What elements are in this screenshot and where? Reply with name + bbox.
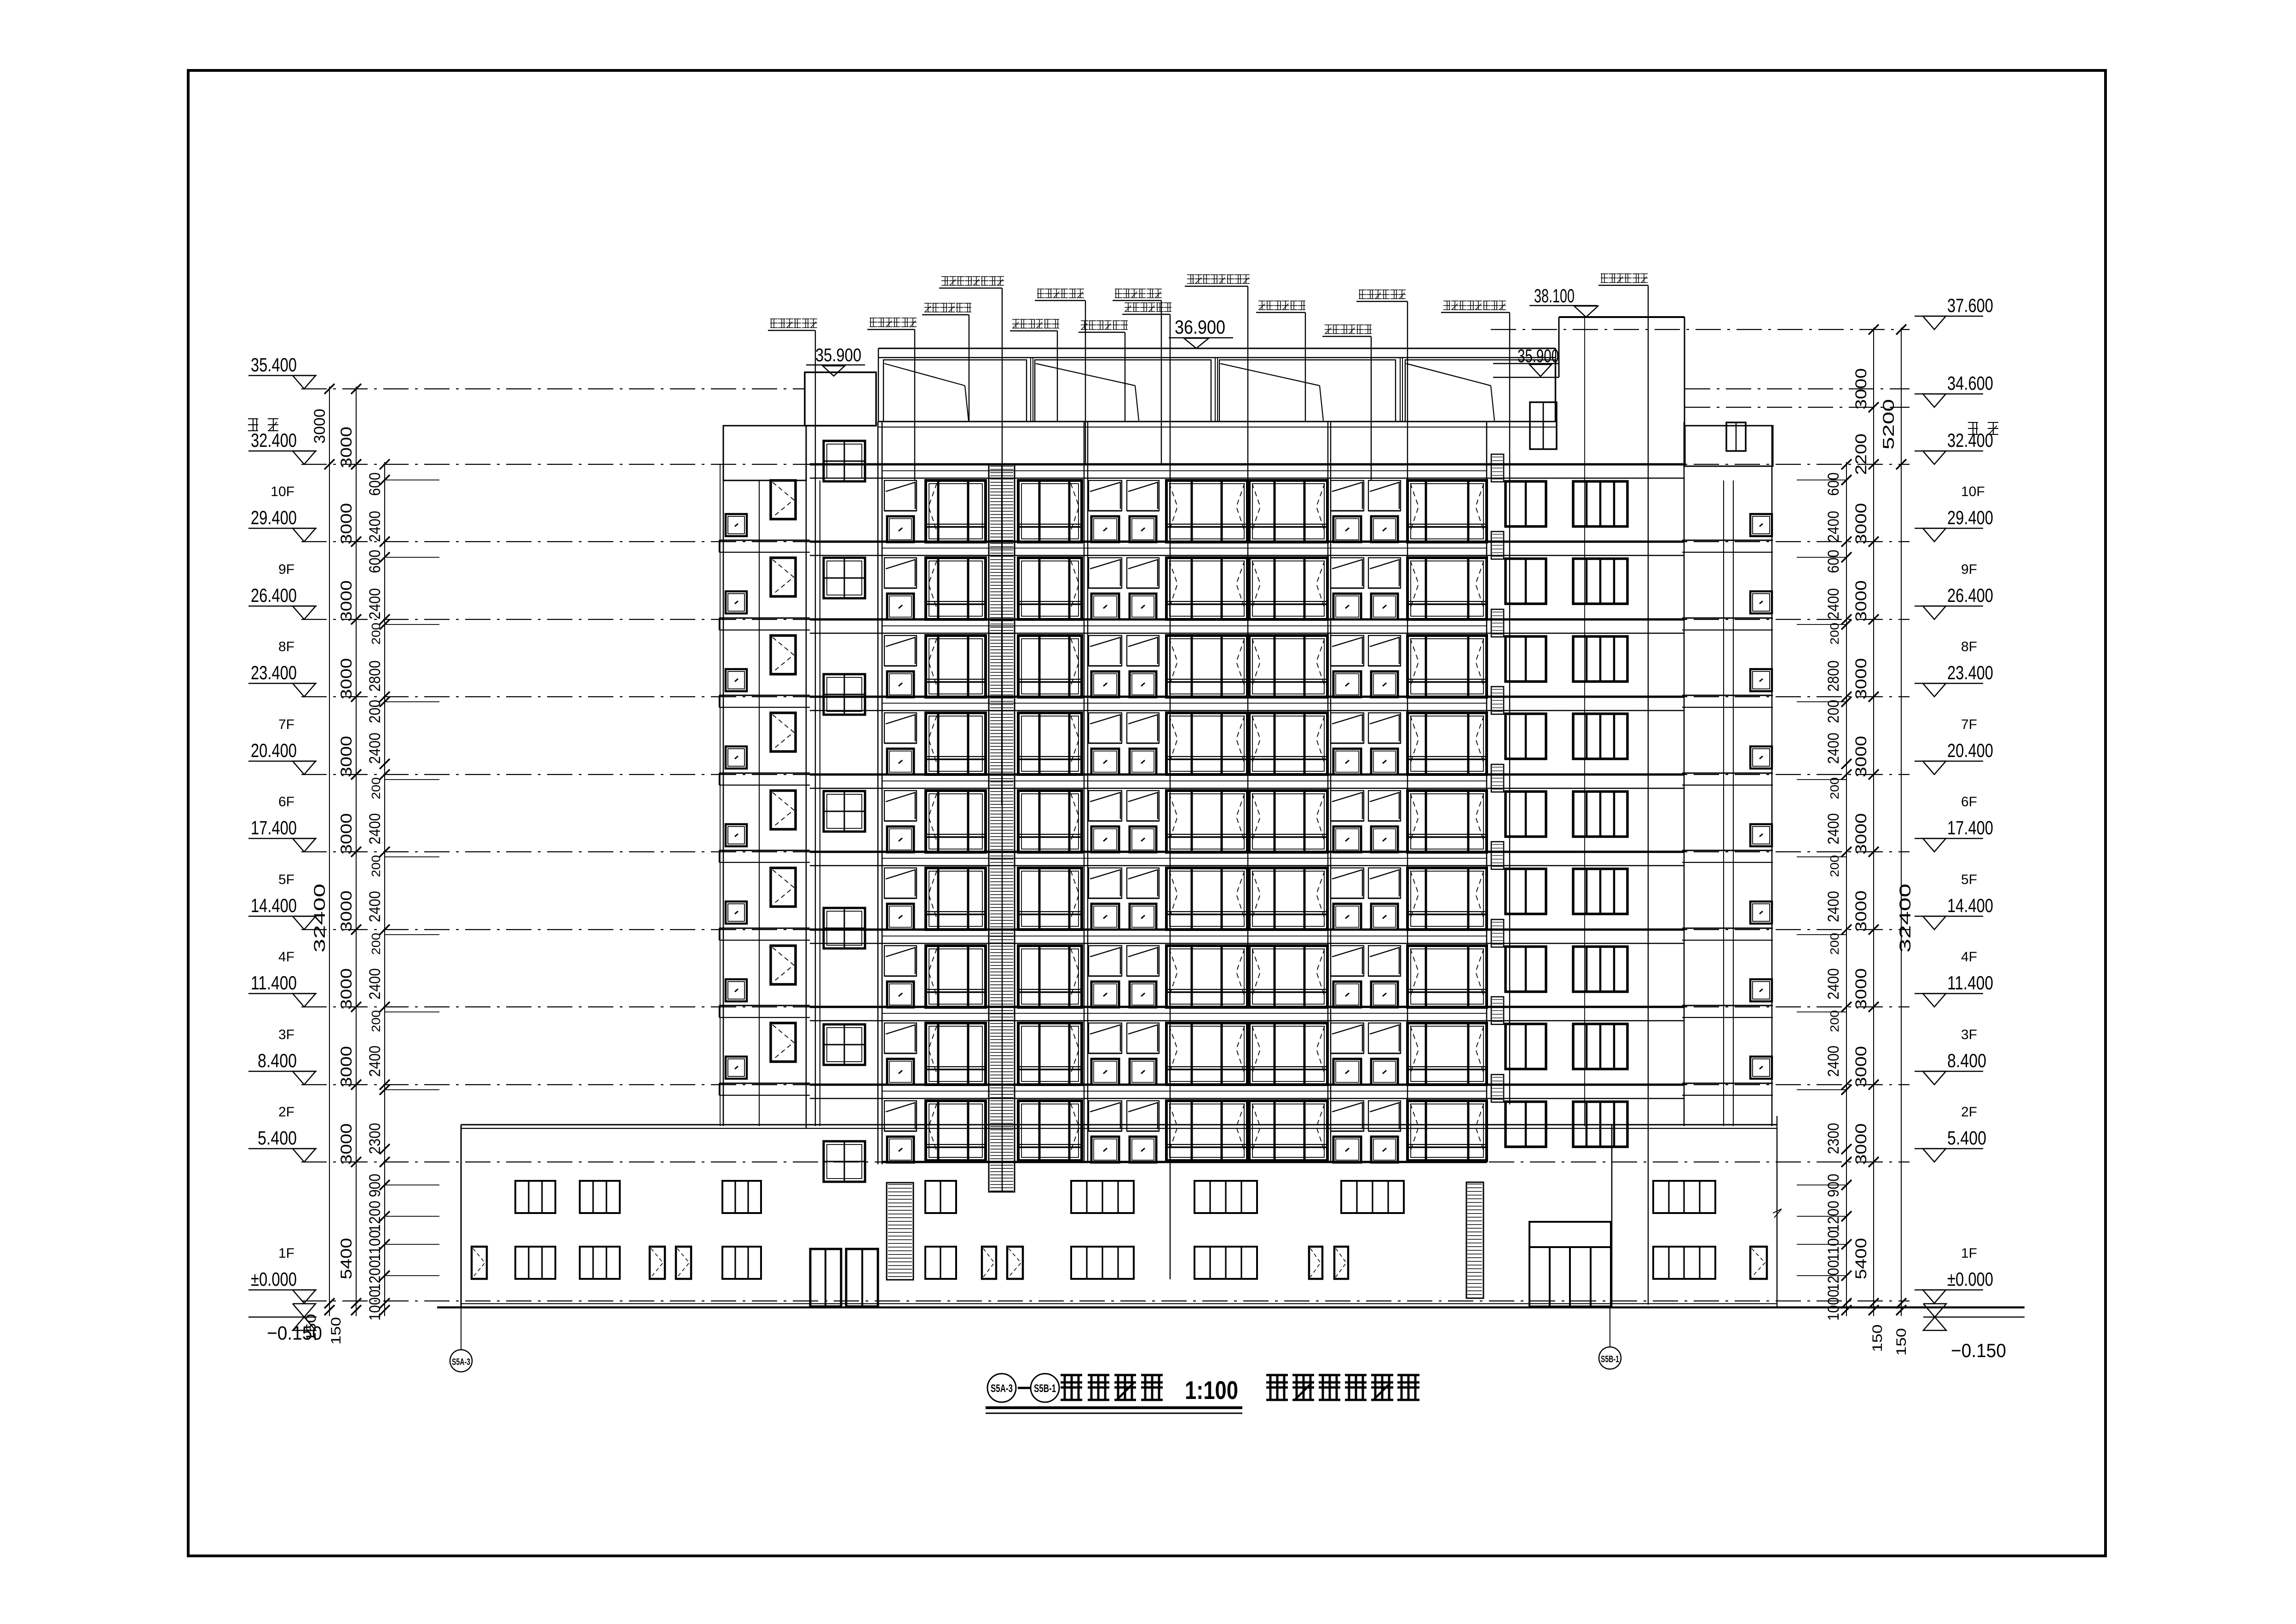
svg-text:23.400: 23.400 [251,662,297,683]
svg-text:S5A-3: S5A-3 [452,1357,470,1367]
svg-text:±0.000: ±0.000 [1947,1268,1993,1290]
svg-text:200: 200 [369,777,383,799]
svg-text:5.400: 5.400 [1947,1127,1986,1149]
svg-text:3000: 3000 [338,580,355,622]
svg-text:900: 900 [1825,1174,1842,1197]
svg-text:5F: 5F [1961,872,1977,887]
svg-text:2800: 2800 [366,660,384,692]
svg-text:3000: 3000 [1852,736,1870,777]
svg-text:20.400: 20.400 [1947,740,1993,761]
svg-text:29.400: 29.400 [251,507,297,528]
svg-text:2400: 2400 [1825,1046,1842,1077]
svg-text:17.400: 17.400 [251,817,297,838]
svg-text:38.100: 38.100 [1534,285,1575,306]
svg-text:26.400: 26.400 [1947,584,1993,606]
svg-text:2200: 2200 [1852,433,1870,475]
svg-text:1200: 1200 [366,1260,384,1291]
svg-text:200: 200 [369,933,383,955]
svg-text:35.400: 35.400 [251,354,297,376]
svg-text:2400: 2400 [1825,813,1842,844]
svg-text:200: 200 [1828,855,1841,877]
svg-text:8.400: 8.400 [258,1050,297,1071]
svg-text:2400: 2400 [366,733,384,764]
svg-text:3000: 3000 [338,1046,355,1087]
svg-text:1200: 1200 [366,1201,384,1232]
svg-text:2400: 2400 [1825,588,1842,619]
svg-text:5.400: 5.400 [258,1127,297,1149]
svg-text:3000: 3000 [338,813,355,855]
svg-text:150: 150 [1894,1328,1909,1356]
svg-text:2400: 2400 [366,511,384,542]
svg-text:600: 600 [1825,550,1842,573]
svg-text:200: 200 [369,623,383,645]
svg-text:3000: 3000 [311,409,329,444]
svg-text:32400: 32400 [1897,884,1914,953]
svg-text:3F: 3F [278,1027,294,1042]
svg-text:29.400: 29.400 [1947,507,1993,528]
svg-text:2400: 2400 [366,588,384,619]
svg-text:2400: 2400 [1825,511,1842,542]
svg-text:3000: 3000 [1852,968,1870,1010]
svg-text:1F: 1F [1961,1246,1977,1261]
svg-text:26.400: 26.400 [251,584,297,606]
svg-text:6F: 6F [278,794,294,809]
svg-text:S5B-1: S5B-1 [1601,1354,1619,1364]
svg-text:35.900: 35.900 [815,345,861,365]
svg-text:1100: 1100 [1825,1230,1842,1261]
svg-text:14.400: 14.400 [251,895,297,916]
svg-text:32400: 32400 [311,884,329,953]
svg-text:3000: 3000 [338,890,355,932]
svg-text:1000: 1000 [1825,1289,1842,1321]
svg-text:3000: 3000 [338,736,355,777]
svg-text:3000: 3000 [1852,580,1870,622]
svg-text:2400: 2400 [1825,733,1842,764]
svg-text:200: 200 [369,1010,383,1032]
svg-text:±0.000: ±0.000 [251,1268,297,1290]
svg-text:2F: 2F [1961,1104,1977,1120]
svg-text:4F: 4F [1961,949,1977,965]
svg-text:5400: 5400 [1852,1238,1870,1279]
svg-text:900: 900 [366,1174,384,1197]
svg-text:20.400: 20.400 [251,740,297,761]
svg-text:600: 600 [1825,473,1842,496]
svg-text:2800: 2800 [1825,660,1842,692]
svg-text:1000: 1000 [366,1289,384,1321]
svg-text:S5A-3: S5A-3 [991,1382,1013,1395]
svg-text:2400: 2400 [1825,891,1842,922]
svg-text:3000: 3000 [338,1123,355,1165]
svg-text:600: 600 [366,550,384,573]
svg-text:2400: 2400 [366,813,384,844]
svg-text:3000: 3000 [1852,1123,1870,1165]
svg-text:36.900: 36.900 [1175,316,1225,338]
svg-text:2400: 2400 [1825,968,1842,1000]
svg-text:8F: 8F [278,639,294,654]
svg-text:1:100: 1:100 [1185,1375,1238,1404]
svg-text:200: 200 [1828,1010,1841,1032]
svg-text:3F: 3F [1961,1027,1977,1042]
svg-text:8.400: 8.400 [1947,1050,1986,1071]
svg-text:200: 200 [369,855,383,877]
svg-text:11.400: 11.400 [1947,972,1993,994]
svg-text:−0.150: −0.150 [1951,1340,2006,1361]
svg-text:200: 200 [1825,700,1842,723]
svg-text:5400: 5400 [338,1238,355,1279]
svg-text:2300: 2300 [1825,1123,1842,1154]
svg-text:34.600: 34.600 [1947,372,1993,394]
svg-text:2F: 2F [278,1104,294,1120]
svg-text:200: 200 [1828,777,1841,799]
svg-text:1100: 1100 [366,1230,384,1261]
svg-text:14.400: 14.400 [1947,895,1993,916]
svg-text:3000: 3000 [1852,368,1870,410]
svg-text:8F: 8F [1961,639,1977,654]
svg-text:23.400: 23.400 [1947,662,1993,683]
svg-text:7F: 7F [278,717,294,732]
svg-text:200: 200 [1828,623,1841,645]
svg-text:32.400: 32.400 [1947,429,1993,451]
svg-text:10F: 10F [1961,484,1985,499]
svg-text:32.400: 32.400 [251,429,297,451]
svg-text:3000: 3000 [338,503,355,544]
svg-text:2400: 2400 [366,968,384,1000]
svg-text:3000: 3000 [338,658,355,699]
svg-text:3000: 3000 [338,427,355,468]
svg-text:150: 150 [1870,1324,1885,1352]
svg-text:17.400: 17.400 [1947,817,1993,838]
svg-text:11.400: 11.400 [251,972,297,994]
svg-text:7F: 7F [1961,717,1977,732]
svg-text:150: 150 [329,1317,344,1345]
svg-text:3000: 3000 [1852,658,1870,699]
svg-text:200: 200 [1828,933,1841,955]
svg-text:3000: 3000 [338,968,355,1010]
svg-text:5200: 5200 [1880,399,1898,450]
svg-text:9F: 9F [1961,562,1977,577]
svg-text:2300: 2300 [366,1123,384,1154]
svg-text:6F: 6F [1961,794,1977,809]
svg-text:150: 150 [304,1314,319,1341]
svg-text:3000: 3000 [1852,890,1870,932]
svg-text:37.600: 37.600 [1947,295,1993,316]
svg-text:200: 200 [366,700,384,723]
svg-text:3000: 3000 [1852,813,1870,855]
svg-text:9F: 9F [278,562,294,577]
svg-text:3000: 3000 [1852,1046,1870,1087]
svg-text:2400: 2400 [366,891,384,922]
svg-text:5F: 5F [278,872,294,887]
svg-text:600: 600 [366,473,384,496]
svg-text:1F: 1F [278,1246,294,1261]
svg-text:S5B-1: S5B-1 [1034,1382,1056,1395]
svg-text:2400: 2400 [366,1046,384,1077]
svg-text:4F: 4F [278,949,294,965]
svg-text:3000: 3000 [1852,503,1870,544]
svg-text:10F: 10F [271,484,294,499]
